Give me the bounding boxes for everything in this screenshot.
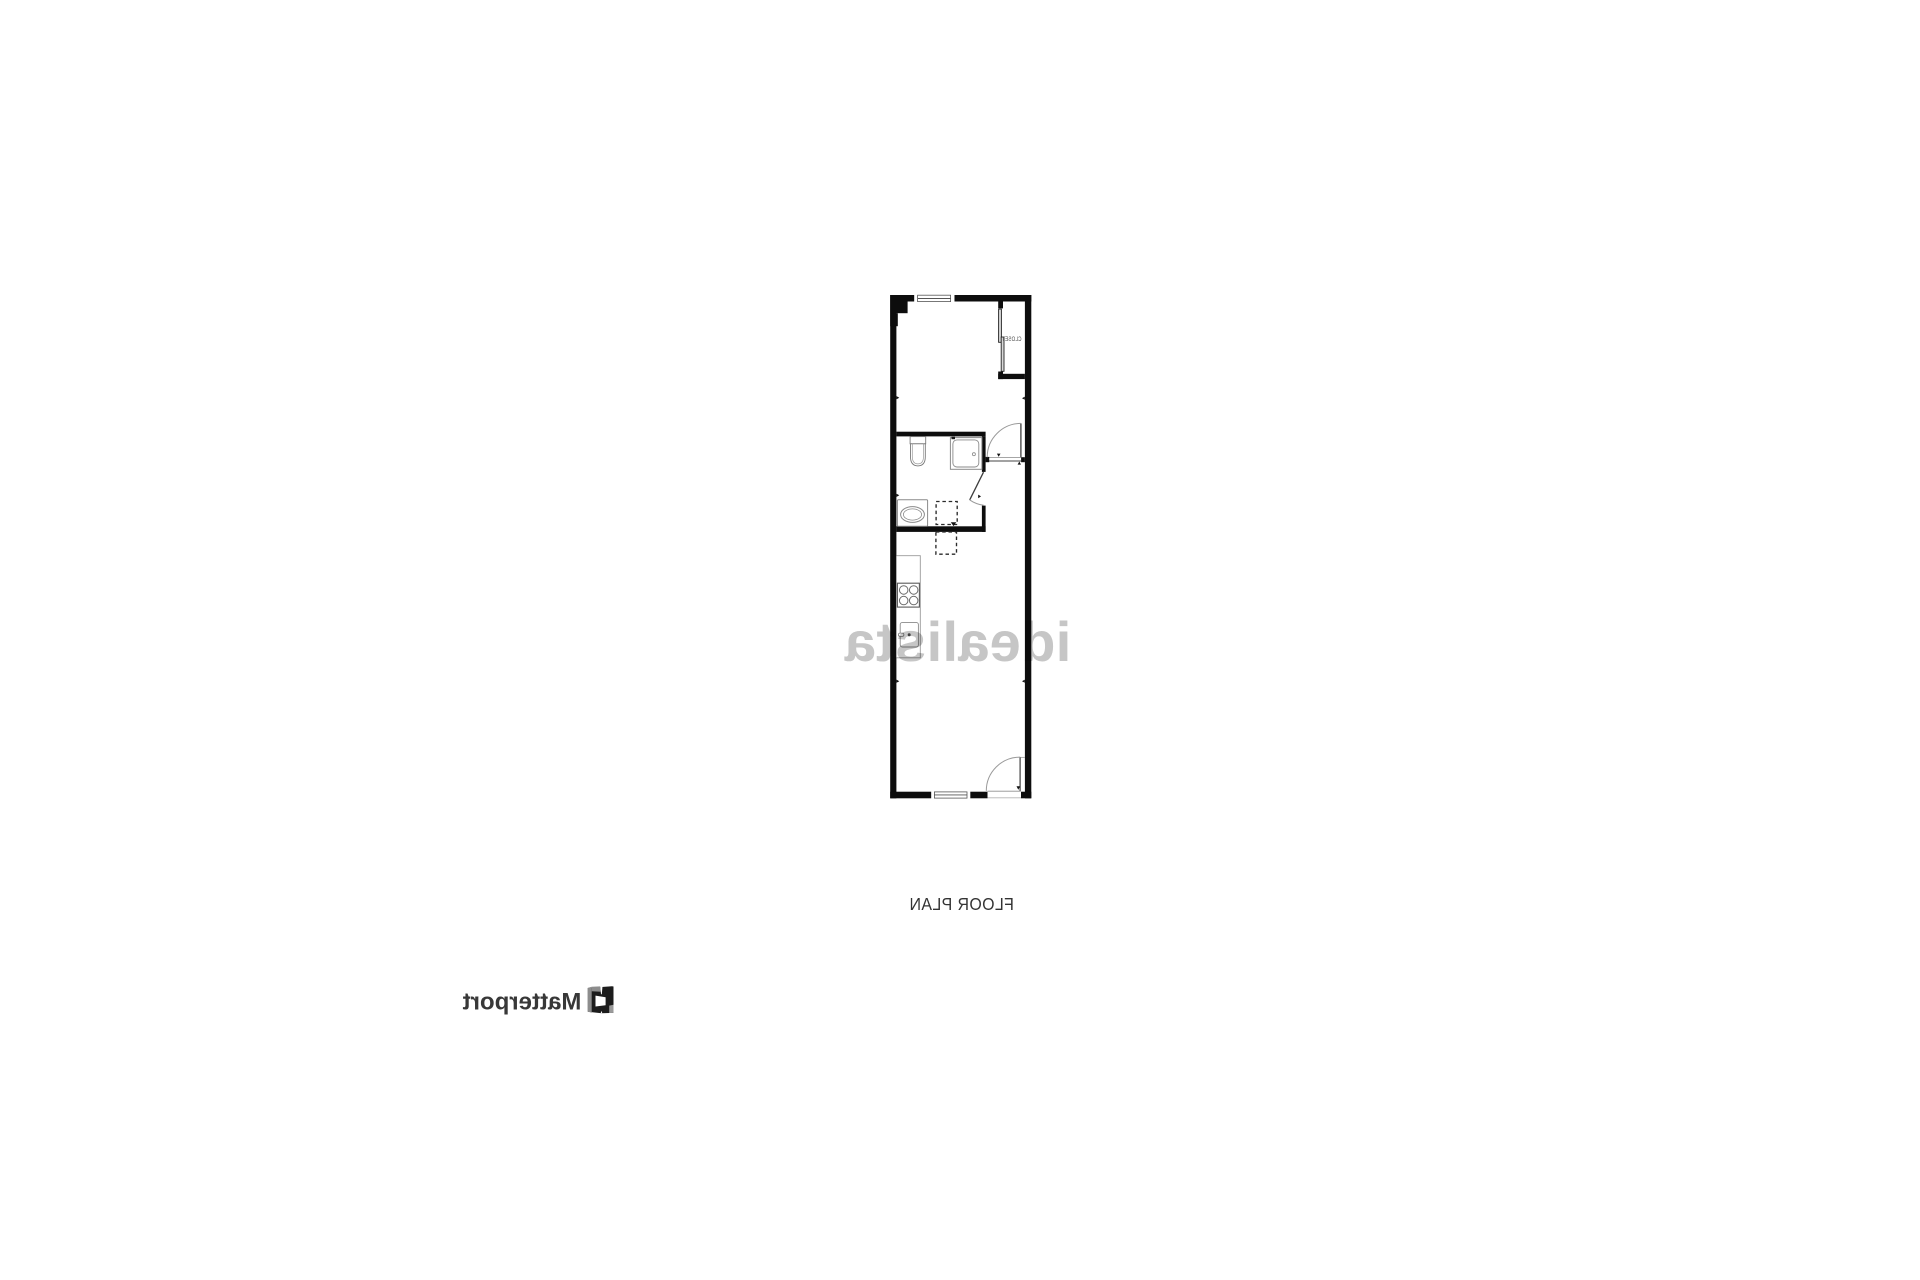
svg-text:idealista: idealista (844, 610, 1071, 673)
svg-text:Matterport: Matterport (463, 988, 582, 1015)
svg-text:FLOOR PLAN: FLOOR PLAN (909, 894, 1014, 914)
svg-text:CLOSET: CLOSET (1001, 336, 1021, 343)
